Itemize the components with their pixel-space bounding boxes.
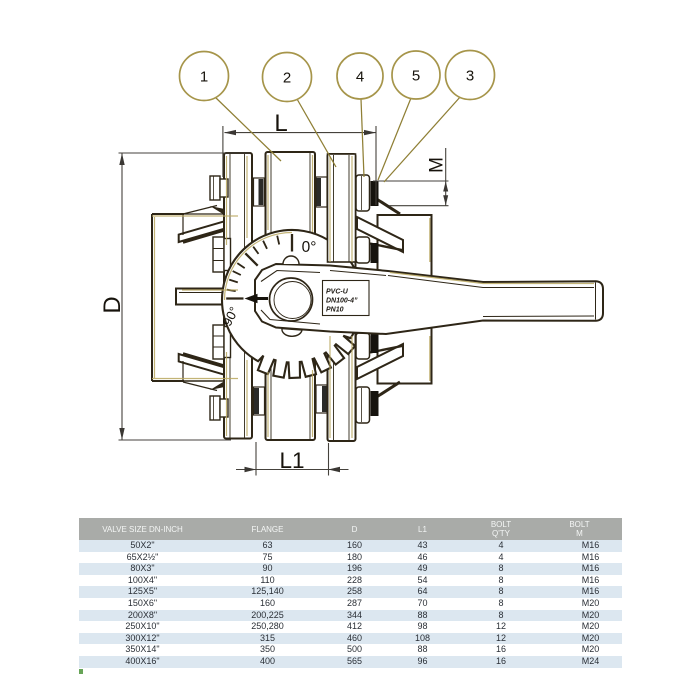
svg-text:5: 5 [412, 68, 420, 85]
svg-text:3: 3 [466, 68, 474, 85]
svg-text:4: 4 [356, 69, 364, 86]
svg-text:DN100-4”: DN100-4” [326, 298, 358, 305]
svg-text:M: M [427, 157, 448, 173]
svg-text:0°: 0° [302, 239, 317, 256]
svg-text:PN10: PN10 [326, 307, 344, 314]
svg-text:L1: L1 [279, 448, 304, 473]
svg-text:D: D [99, 296, 126, 313]
svg-text:1: 1 [200, 69, 208, 86]
svg-text:2: 2 [283, 70, 291, 87]
svg-text:PVC-U: PVC-U [326, 289, 349, 296]
svg-text:L: L [274, 110, 287, 137]
